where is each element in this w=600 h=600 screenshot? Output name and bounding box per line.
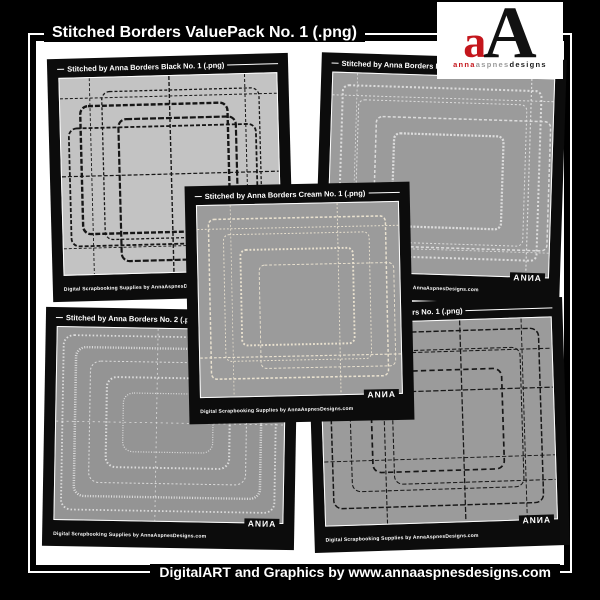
stitched-border-swatch [196, 201, 403, 398]
preview-card-borders-cream-no-1: Stitched by Anna Borders Cream No. 1 (.p… [185, 182, 415, 425]
anna-brandmark: ANИA [510, 272, 545, 283]
header-rule [466, 307, 553, 311]
logo-subtext-aspnes: aspnes [476, 60, 510, 69]
anna-aspnes-logo: a A anna aspnes designs [437, 2, 563, 79]
footer-credit: DigitalART and Graphics by www.annaaspne… [150, 564, 560, 581]
header-rule [227, 63, 278, 65]
logo-subtext: anna aspnes designs [453, 60, 547, 69]
card-header: Stitched by Anna Borders Cream No. 1 (.p… [195, 187, 400, 202]
card-credit: Digital Scrapbooking Supplies by AnnaAsp… [200, 406, 353, 415]
page-title: Stitched Borders ValuePack No. 1 (.png) [44, 24, 365, 42]
card-title: Stitched by Anna Borders No. 2 (.png) [66, 313, 201, 324]
anna-brandmark: ANИA [364, 389, 399, 400]
header-dash [195, 196, 202, 197]
card-title: Stitched by Anna Borders Cream No. 1 (.p… [205, 189, 366, 201]
logo-subtext-designs: designs [509, 60, 546, 69]
product-preview-page: Stitched by Anna Borders Black No. 1 (.p… [0, 0, 600, 600]
logo-monogram: a A [463, 2, 536, 64]
header-dash [56, 317, 63, 318]
anna-brandmark: ANИA [245, 518, 280, 529]
card-credit: Digital Scrapbooking Supplies by AnnaAsp… [325, 533, 478, 544]
logo-subtext-anna: anna [453, 60, 476, 69]
header-rule [368, 192, 399, 194]
anna-brandmark: ANИA [519, 514, 554, 525]
card-title: Stitched by Anna Borders Black No. 1 (.p… [67, 61, 224, 74]
logo-letter-A: A [483, 2, 536, 64]
card-credit: Digital Scrapbooking Supplies by AnnaAsp… [53, 531, 206, 540]
header-dash [57, 69, 64, 70]
header-dash [332, 63, 339, 64]
